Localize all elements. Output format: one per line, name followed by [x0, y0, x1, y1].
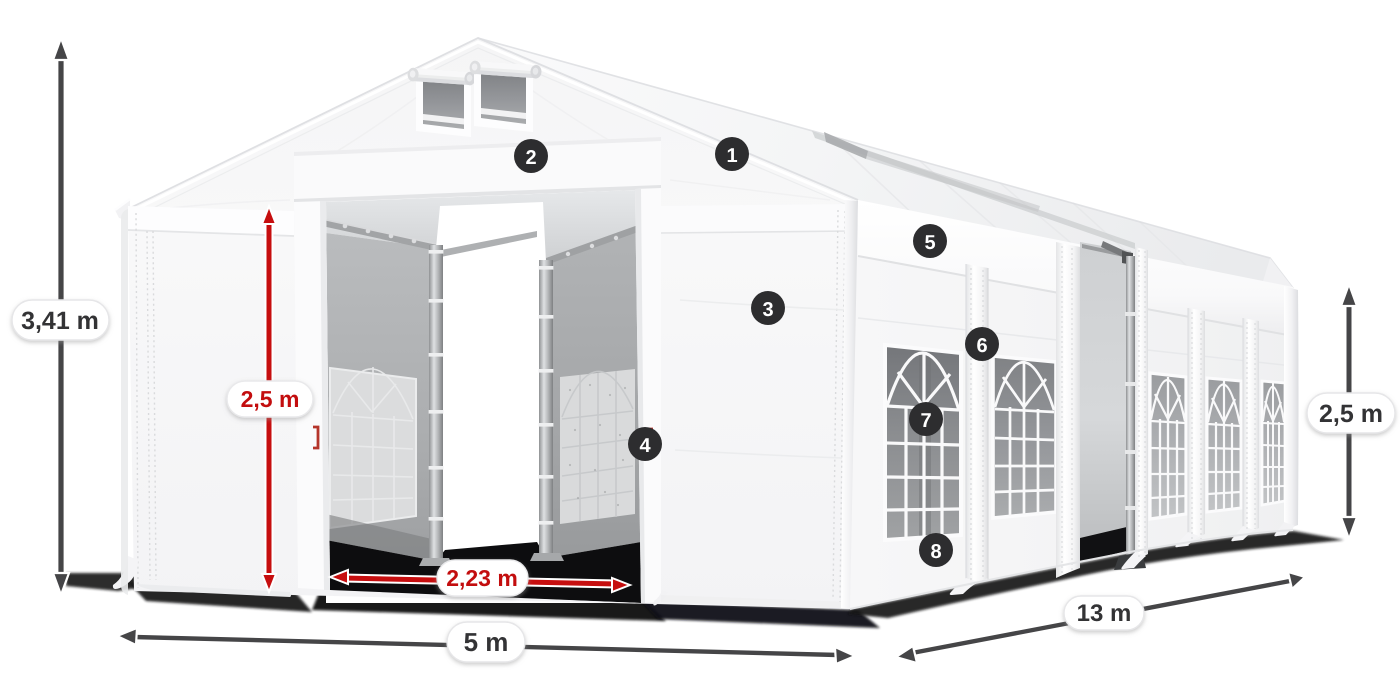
svg-text:3,41 m: 3,41 m: [21, 307, 99, 335]
svg-text:5: 5: [924, 232, 935, 254]
svg-text:3: 3: [762, 299, 773, 321]
svg-text:2,5 m: 2,5 m: [241, 386, 300, 412]
svg-text:4: 4: [639, 435, 651, 457]
svg-text:13 m: 13 m: [1077, 600, 1132, 627]
svg-text:7: 7: [920, 410, 931, 432]
svg-text:8: 8: [930, 541, 941, 563]
svg-text:2: 2: [525, 147, 536, 169]
svg-text:2,5 m: 2,5 m: [1319, 400, 1383, 428]
svg-text:6: 6: [976, 335, 987, 357]
svg-text:2,23 m: 2,23 m: [446, 565, 518, 591]
svg-text:5 m: 5 m: [464, 627, 509, 657]
svg-text:1: 1: [726, 145, 737, 167]
